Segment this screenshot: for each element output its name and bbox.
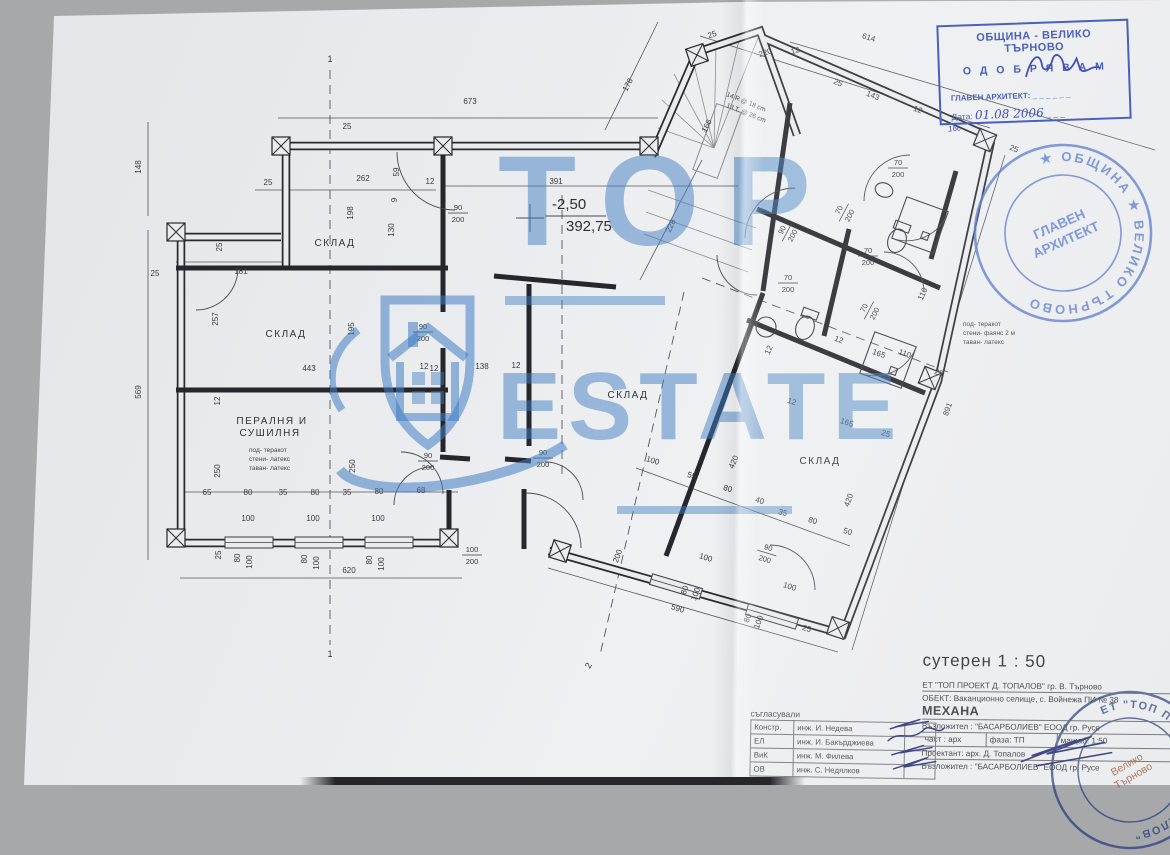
dimension-label: 198 [346, 206, 355, 220]
approvals-cell: ЕЛ [750, 734, 793, 749]
svg-text:90: 90 [454, 203, 462, 212]
dimension-label: 25 [832, 77, 844, 89]
section-marker: 2 [583, 661, 594, 670]
approvals-cell [904, 765, 935, 780]
room-labels: СКЛАДСКЛАДСКЛАДСКЛАД [266, 238, 841, 467]
dimension-label: 100 [698, 551, 714, 564]
dimension-label: 166 [700, 117, 714, 133]
dimension-label: 100 [306, 514, 320, 523]
svg-text:200: 200 [422, 463, 435, 472]
approvals-cell: инж. С. Недялков [793, 763, 904, 779]
dimension-label: 25 [215, 242, 224, 251]
svg-text:90: 90 [763, 542, 774, 553]
stair-treads [644, 36, 758, 272]
stamp-architect-label: ГЛАВЕН АРХИТЕКТ: _ _ _ _ _ _ [951, 88, 1121, 103]
dimension-label: 25 [707, 29, 719, 40]
dimension-label: 40 [754, 495, 766, 506]
column-symbol [272, 137, 290, 155]
approvals-cell: ВиК [750, 748, 793, 763]
dimension-label: 165 [871, 347, 887, 360]
room-label: СУШИЛНЯ [239, 428, 300, 439]
dimension-label: 673 [463, 97, 477, 106]
title-block: сутерен 1 : 50 ЕТ "ТОП ПРОЕКТ Д. ТОПАЛОВ… [921, 651, 1170, 775]
finish-note: стени- фаянс 2 м [963, 330, 1016, 337]
finish-note: таван- латекс [963, 339, 1005, 346]
column-symbol [440, 529, 458, 547]
dimension-label: 100 [645, 454, 661, 467]
dimension-label: 12 [786, 396, 798, 407]
dimension-label: 891 [941, 401, 954, 417]
dimension-label: 100 [312, 556, 321, 570]
stamp-date-value: 01.08 2006 [975, 106, 1044, 122]
dimension-label: 262 [356, 174, 370, 183]
dimension-label: 181 [234, 267, 248, 276]
room-label: ПЕРАЛНЯ И [236, 416, 307, 427]
dimension-label: 68 [417, 486, 426, 495]
dimension-label: 80 [807, 515, 819, 526]
door-size-label: 90200 [448, 203, 468, 224]
stamp-municipality: ОБЩИНА - ВЕЛИКО ТЪРНОВО [949, 27, 1120, 57]
dimension-label: 35 [279, 488, 288, 497]
approvals-cell [904, 751, 935, 766]
dimension-label: 25 [801, 623, 813, 634]
dimension-label: 12 [512, 361, 521, 370]
svg-text:200: 200 [417, 334, 430, 343]
section-marker: 1 [327, 649, 332, 659]
dimension-label: 80 [722, 483, 734, 494]
approvals-table: съгласували Констр.инж. И. НедеваЕЛинж. … [749, 708, 936, 779]
dimension-label: 25 [214, 550, 223, 559]
column-symbol [434, 137, 452, 155]
finish-note: стени- латекс [249, 456, 291, 463]
door-size-label: 70200 [830, 199, 858, 227]
column-symbol [167, 223, 185, 241]
stamp-approve: О Д О Б Р Я В А М [950, 60, 1120, 78]
dimension-label: 100 [245, 555, 254, 569]
dimension-label: 12 [213, 396, 222, 405]
section-marker: 1 [327, 54, 332, 64]
dimension-label: 80 [311, 488, 320, 497]
window-symbol [225, 537, 273, 548]
dimension-label: 12 [912, 104, 924, 116]
svg-text:200: 200 [782, 285, 795, 294]
door-size-label: 70200 [778, 273, 798, 294]
dimension-label: 80 [375, 487, 384, 496]
door-size-label: 70200 [888, 158, 908, 179]
dimension-label: 420 [842, 492, 855, 508]
dimension-label: 100 [241, 514, 255, 523]
svg-text:200: 200 [862, 258, 875, 267]
dimension-label: 59 [392, 167, 401, 176]
window-symbol [365, 537, 413, 548]
svg-text:90: 90 [539, 448, 547, 457]
dimension-label: 35 [777, 507, 789, 518]
dimension-label: 620 [342, 566, 356, 575]
dimension-label: 195 [347, 322, 356, 336]
dimension-label: 443 [302, 364, 316, 373]
svg-text:90: 90 [424, 451, 432, 460]
room-label: СКЛАД [315, 238, 356, 249]
dimension-label: 178 [621, 76, 635, 92]
dimension-label: 257 [211, 312, 220, 326]
stamp-date-dashes: _ _ _ [1046, 108, 1065, 119]
door-size-label: 100200 [462, 545, 482, 566]
level-elevation: -2,50 [552, 196, 586, 213]
svg-text:200: 200 [892, 170, 905, 179]
door-size-label: 70200 [855, 297, 883, 325]
dimension-label: 25 [880, 428, 892, 439]
dimension-label: 100 [377, 557, 386, 571]
door-size-label: 90200 [413, 322, 433, 343]
dimension-label: 12 [426, 177, 435, 186]
dimension-label: 200 [611, 548, 624, 564]
dimension-label: 228 [664, 217, 678, 233]
dimension-label: 12 [420, 362, 429, 371]
room-label: СКЛАД [266, 329, 307, 340]
svg-text:70: 70 [784, 273, 792, 282]
dimension-label: 80 [365, 555, 374, 564]
svg-text:90: 90 [419, 322, 427, 331]
dimension-label: 65 [203, 488, 212, 497]
dimension-label: 50 [842, 526, 854, 537]
door-size-label: 90200 [533, 448, 553, 469]
dimension-label: 35 [343, 488, 352, 497]
dimension-label: 80 [300, 554, 309, 563]
dimension-label: 9 [390, 197, 399, 202]
finish-note: под- теракот [963, 321, 1001, 328]
sink-icon [873, 180, 895, 199]
dimension-label: 12 [763, 344, 775, 356]
approvals-grid: Констр.инж. И. НедеваЕЛинж. И. Бакърджие… [749, 719, 936, 779]
svg-text:200: 200 [452, 215, 465, 224]
dimension-label: 80 [233, 553, 242, 562]
column-symbol [640, 137, 658, 155]
drawing-title: сутерен 1 : 50 [922, 651, 1170, 674]
door-size-label: 90200 [754, 540, 779, 566]
dimension-label: 25 [343, 122, 352, 131]
finish-note: таван- латекс [249, 465, 291, 472]
dimension-label: 100 [371, 514, 385, 523]
room-label: СКЛАД [800, 456, 841, 467]
svg-text:200: 200 [466, 557, 479, 566]
svg-text:70: 70 [864, 246, 872, 255]
dimension-label: 25 [1008, 143, 1020, 155]
approvals-cell [905, 723, 936, 738]
toilet-icon [884, 220, 912, 255]
scale-cell: мащаб: 1:50 [1058, 734, 1170, 748]
photo-edge-shadow [300, 777, 805, 785]
room-label: СКЛАД [608, 390, 649, 401]
phase-cell: фаза: ТП [987, 733, 1058, 747]
dimension-label: 25 [264, 178, 273, 187]
approvals-cell: Констр. [751, 720, 794, 735]
dimension-label: 614 [861, 31, 877, 43]
dimension-label: 590 [670, 602, 686, 615]
dimension-label: 420 [727, 454, 741, 470]
dimension-label: 250 [348, 459, 357, 473]
svg-text:200: 200 [537, 460, 550, 469]
dimension-label: 250 [213, 464, 222, 478]
stamp-handwritten-note: 16с [948, 123, 962, 133]
stamp-date-label: Дата: [951, 111, 973, 122]
approval-stamp: ОБЩИНА - ВЕЛИКО ТЪРНОВО О Д О Б Р Я В А … [936, 19, 1131, 126]
dimension-label: 130 [387, 223, 396, 237]
dimension-label: 12 [833, 334, 845, 346]
column-symbol [167, 529, 185, 547]
dimension-label: 165 [839, 416, 855, 429]
svg-text:70: 70 [894, 158, 902, 167]
dimension-label: 110 [916, 286, 930, 302]
dimension-label: 12 [430, 364, 439, 373]
dimension-label: 569 [134, 385, 143, 399]
toilet-icon [792, 307, 820, 342]
window-symbol [295, 537, 343, 548]
level-absolute: 392,75 [566, 218, 612, 235]
dimension-label: 80 [244, 488, 253, 497]
dimension-label: 25 [151, 269, 160, 278]
dimension-label: 138 [475, 362, 489, 371]
svg-text:100: 100 [466, 545, 479, 554]
dimension-label: 391 [549, 177, 563, 186]
svg-text:200: 200 [758, 553, 773, 565]
finish-note: под- теракот [249, 447, 287, 454]
dimension-label: 100 [782, 580, 798, 593]
approvals-cell: ОВ [750, 762, 793, 777]
dimension-label: 148 [134, 160, 143, 174]
approvals-cell [904, 737, 935, 752]
